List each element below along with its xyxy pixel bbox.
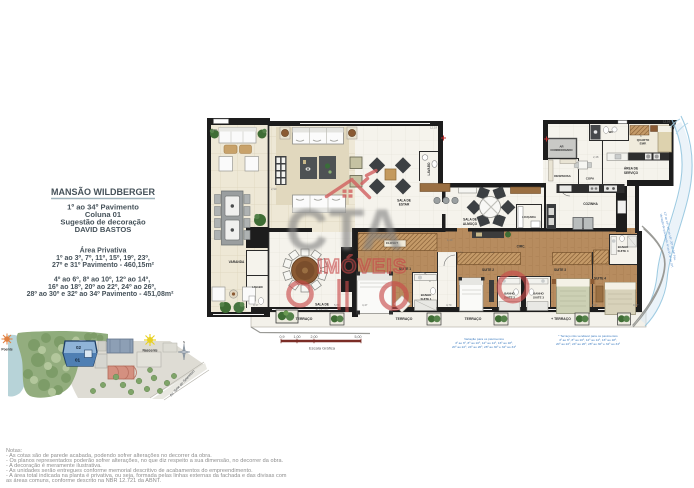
svg-text:02: 02 bbox=[76, 345, 82, 350]
svg-text:2,00: 2,00 bbox=[311, 335, 318, 339]
svg-text:4,70: 4,70 bbox=[446, 303, 452, 307]
svg-text:3,07: 3,07 bbox=[592, 303, 598, 307]
svg-text:SUITE 4: SUITE 4 bbox=[618, 249, 629, 253]
svg-text:Nascente: Nascente bbox=[142, 349, 157, 353]
svg-text:1,40: 1,40 bbox=[447, 238, 453, 242]
svg-text:TERRAÇO: TERRAÇO bbox=[396, 317, 413, 321]
svg-text:LAVABO: LAVABO bbox=[427, 162, 431, 176]
svg-text:N: N bbox=[183, 341, 186, 345]
svg-text:2,48: 2,48 bbox=[593, 155, 599, 159]
svg-text:CTA: CTA bbox=[286, 198, 404, 263]
svg-text:Poente: Poente bbox=[1, 348, 12, 352]
svg-text:Escala Gráfica: Escala Gráfica bbox=[309, 346, 336, 351]
svg-text:01: 01 bbox=[75, 358, 81, 363]
svg-text:SUITE 4: SUITE 4 bbox=[594, 277, 606, 281]
svg-text:1º ao 3º, 7º, 11º, 15º, 19º, 2: 1º ao 3º, 7º, 11º, 15º, 19º, 23º, bbox=[56, 255, 150, 262]
svg-text:Área Privativa: Área Privativa bbox=[80, 246, 127, 255]
svg-text:VARANDA: VARANDA bbox=[229, 260, 245, 264]
svg-text:1,00: 1,00 bbox=[294, 335, 301, 339]
svg-text:27º e 31º Pavimento - 460,15m²: 27º e 31º Pavimento - 460,15m² bbox=[52, 262, 155, 269]
svg-text:20º ao 22º, 24º ao 26º, 28º ao: 20º ao 22º, 24º ao 26º, 28º ao 30º e 32º… bbox=[452, 345, 517, 349]
svg-text:ÁREA DE: ÁREA DE bbox=[624, 166, 638, 171]
svg-text:20º ao 22º, 24º ao 26º, 28º ao: 20º ao 22º, 24º ao 26º, 28º ao 30º e 32º… bbox=[556, 342, 621, 346]
svg-text:0,97: 0,97 bbox=[633, 303, 639, 307]
svg-text:12,16: 12,16 bbox=[663, 120, 670, 124]
svg-text:+ TERRAÇO: + TERRAÇO bbox=[551, 317, 571, 321]
svg-text:DESPENSA: DESPENSA bbox=[554, 174, 571, 178]
svg-text:28º ao 30º e 32º ao 34º Pavime: 28º ao 30º e 32º ao 34º Pavimento - 451,… bbox=[27, 291, 174, 298]
svg-text:TERRAÇO: TERRAÇO bbox=[296, 317, 313, 321]
svg-text:as áreas comuns, conforme desc: as áreas comuns, conforme descrito na NB… bbox=[6, 478, 162, 484]
svg-text:0,37: 0,37 bbox=[253, 303, 259, 307]
svg-text:5,00: 5,00 bbox=[355, 335, 362, 339]
svg-text:5,96: 5,96 bbox=[212, 128, 218, 132]
svg-text:4º ao 6º, 8º ao 10º, 12º ao 14: 4º ao 6º, 8º ao 10º, 12º ao 14º, bbox=[54, 277, 150, 284]
svg-text:CONDICIONADO: CONDICIONADO bbox=[550, 148, 573, 152]
svg-text:SUITE 3: SUITE 3 bbox=[533, 295, 544, 299]
svg-text:SUITE 3: SUITE 3 bbox=[554, 268, 566, 272]
svg-text:0,9: 0,9 bbox=[280, 335, 285, 339]
svg-text:EMP.: EMP. bbox=[640, 142, 647, 146]
svg-text:LAVABO: LAVABO bbox=[252, 285, 263, 289]
svg-text:16º ao 18º, 20º ao 22º, 24º ao: 16º ao 18º, 20º ao 22º, 24º ao 26º, bbox=[48, 284, 156, 291]
svg-text:SUITE 2: SUITE 2 bbox=[482, 268, 494, 272]
svg-text:COPA: COPA bbox=[586, 177, 595, 181]
svg-text:JANTAR: JANTAR bbox=[316, 307, 329, 311]
svg-text:LOUÇARIA: LOUÇARIA bbox=[522, 215, 536, 219]
svg-text:SERVIÇO: SERVIÇO bbox=[624, 171, 639, 175]
svg-text:MANSÃO WILDBERGER: MANSÃO WILDBERGER bbox=[51, 187, 155, 197]
svg-text:WC: WC bbox=[609, 130, 614, 134]
svg-text:2,90: 2,90 bbox=[271, 187, 277, 191]
svg-text:12,18: 12,18 bbox=[430, 126, 437, 130]
svg-text:TERRAÇO: TERRAÇO bbox=[465, 317, 482, 321]
svg-text:IMÓVEIS: IMÓVEIS bbox=[317, 254, 407, 278]
svg-text:ALMOÇO: ALMOÇO bbox=[463, 222, 478, 226]
svg-text:SUITE 1: SUITE 1 bbox=[421, 297, 432, 301]
svg-text:DAVID BASTOS: DAVID BASTOS bbox=[75, 225, 132, 234]
svg-text:COZINHA: COZINHA bbox=[583, 202, 598, 206]
svg-text:CIRC.: CIRC. bbox=[517, 245, 526, 249]
svg-text:4,47: 4,47 bbox=[362, 303, 368, 307]
